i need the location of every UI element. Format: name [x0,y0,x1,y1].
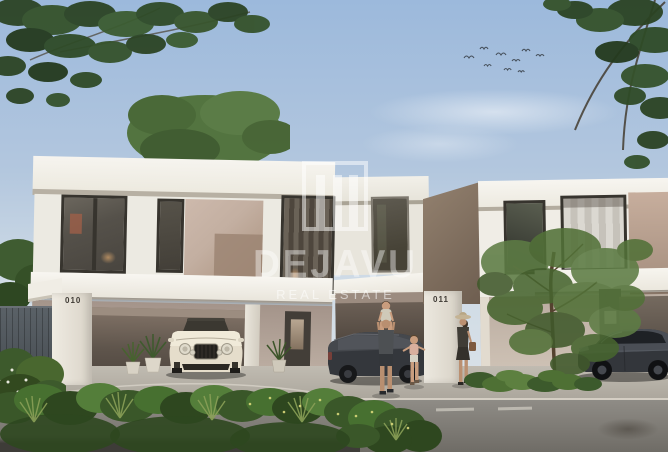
upper-window-narrow [156,198,185,273]
exterior-render-scene: 010 011 [0,0,668,452]
accent-panel [184,199,264,277]
wall-art [70,214,82,234]
unit-number-label: 010 [65,296,81,305]
overhanging-tree-right [505,0,668,180]
foreground-hedge [0,356,668,452]
overhanging-tree-left [0,0,270,125]
tree-bed [464,370,602,392]
accent-panel-shade [214,234,263,277]
upper-window [60,194,128,273]
lamp-glow [97,248,119,266]
hedge-row [0,383,442,452]
